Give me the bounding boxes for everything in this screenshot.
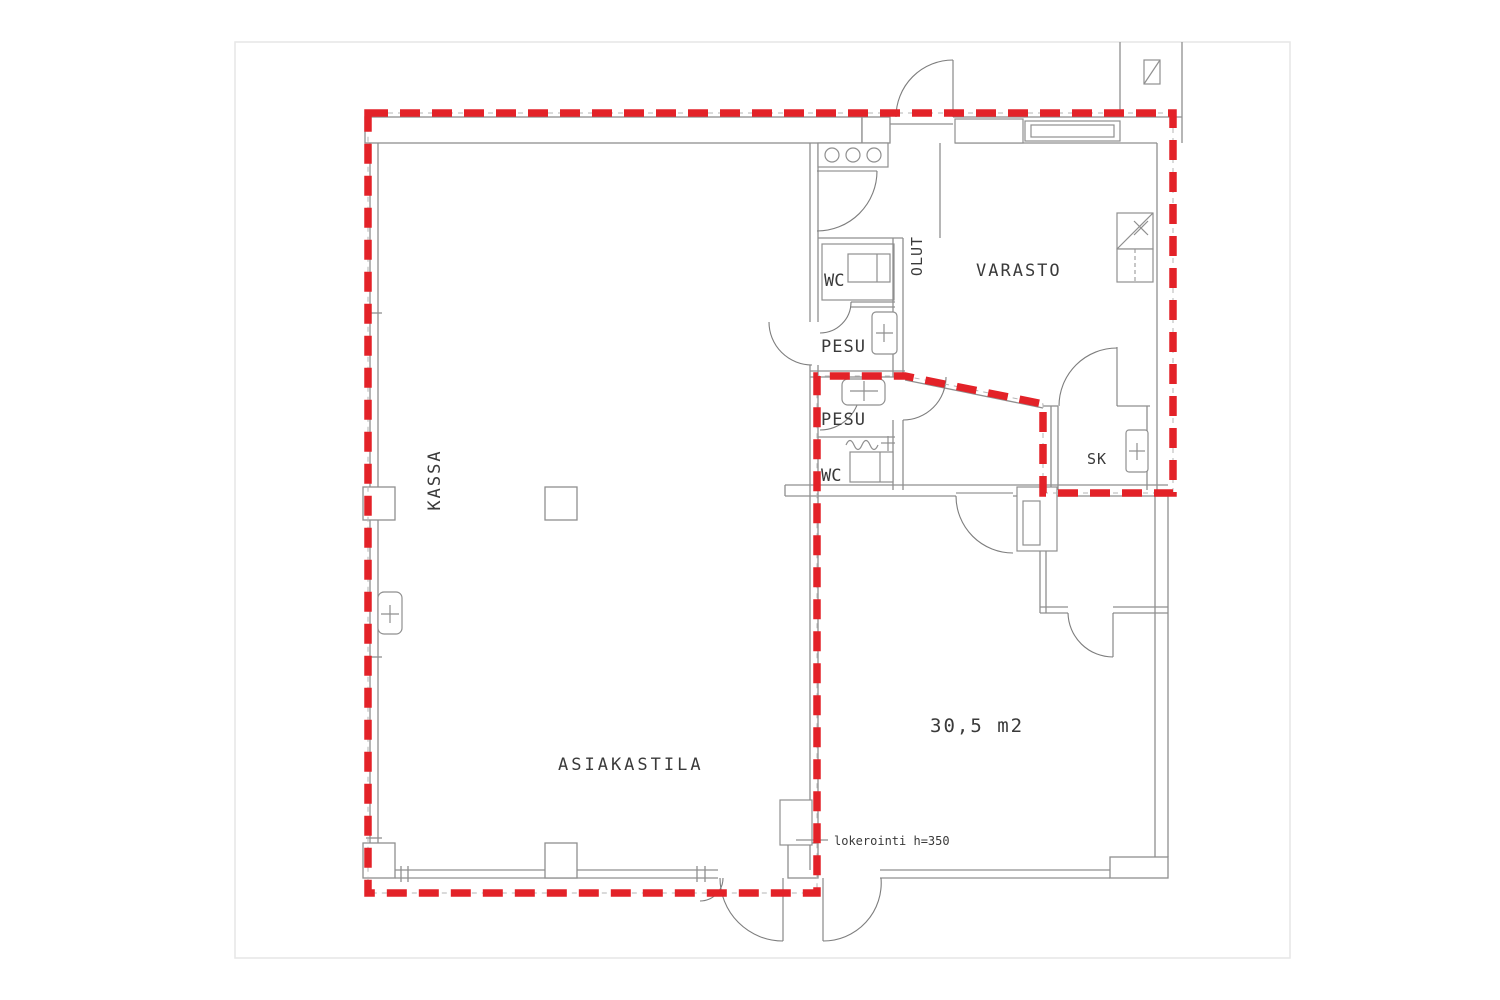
toilet (850, 452, 893, 482)
floor-plan-canvas: KASSA ASIAKASTILA VARASTO OLUT SK WC PES… (0, 0, 1500, 1000)
column (545, 487, 577, 520)
room-label-varasto: VARASTO (976, 261, 1062, 281)
room-label-sk: SK (1087, 450, 1107, 468)
lokerointi-box (780, 800, 812, 845)
bottom-pillar (545, 843, 577, 878)
lokerointi-label: lokerointi h=350 (834, 834, 950, 848)
room-label-pesu-bottom: PESU (821, 410, 866, 430)
floor-plan-drawing: KASSA ASIAKASTILA VARASTO OLUT SK WC PES… (0, 0, 1500, 1000)
stove (818, 143, 888, 167)
toilet (848, 254, 890, 282)
room-label-pesu-top: PESU (821, 337, 866, 357)
room-label-olut: OLUT (908, 236, 926, 276)
top-thick-wall (365, 117, 862, 143)
room-label-asiakastila: ASIAKASTILA (558, 755, 704, 775)
area-label: 30,5 m2 (930, 715, 1024, 737)
room-label-wc-top: WC (824, 271, 844, 291)
room-label-kassa: KASSA (425, 449, 445, 510)
room-label-wc-bottom: WC (821, 466, 841, 486)
